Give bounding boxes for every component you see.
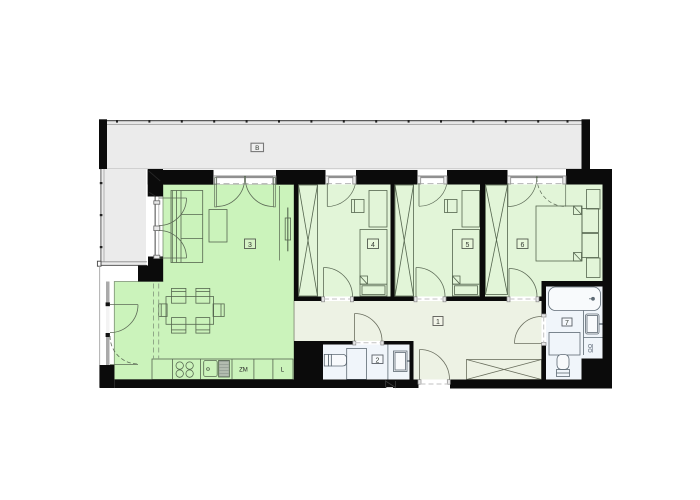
- svg-text:7: 7: [565, 320, 569, 327]
- svg-text:3: 3: [248, 242, 252, 249]
- svg-text:6: 6: [521, 242, 525, 249]
- svg-text:B: B: [255, 145, 259, 152]
- svg-text:4: 4: [371, 242, 375, 249]
- svg-text:1: 1: [436, 319, 440, 326]
- svg-text:5: 5: [466, 242, 470, 249]
- svg-text:2: 2: [376, 357, 380, 364]
- svg-text:ZM: ZM: [239, 368, 248, 374]
